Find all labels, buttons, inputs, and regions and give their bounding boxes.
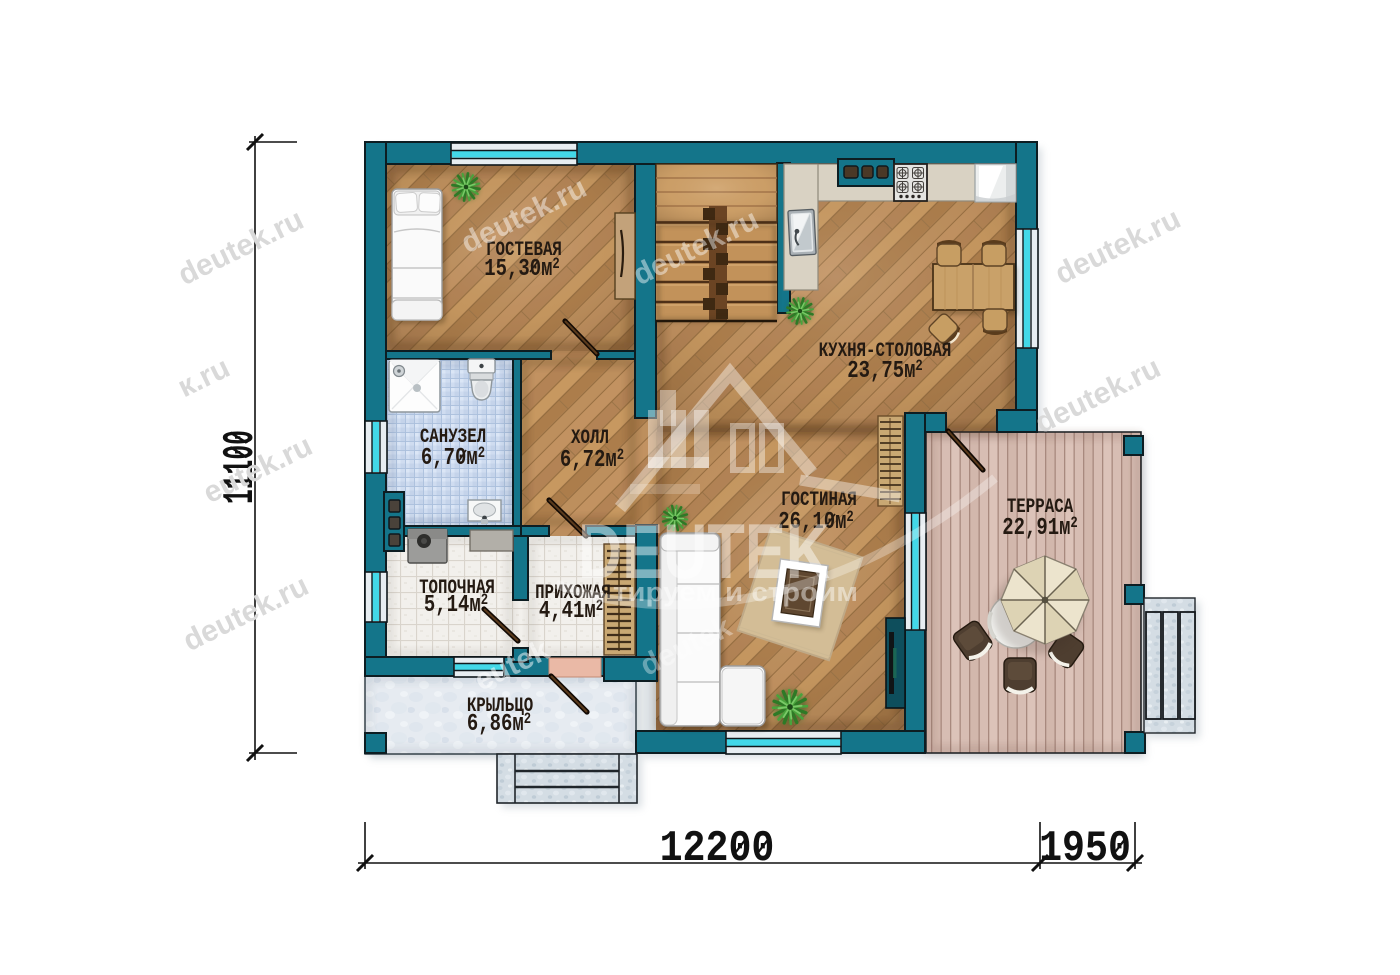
svg-text:15,30м2: 15,30м2 [484, 256, 560, 283]
svg-text:12200: 12200 [660, 825, 775, 874]
svg-text:4,41м2: 4,41м2 [539, 598, 603, 625]
svg-text:23,75м2: 23,75м2 [847, 358, 923, 385]
svg-text:тируем и строим: тируем и строим [613, 577, 858, 607]
svg-text:22,91м2: 22,91м2 [1002, 515, 1078, 542]
svg-text:6,70м2: 6,70м2 [421, 445, 485, 472]
svg-text:6,86м2: 6,86м2 [467, 711, 531, 738]
svg-text:6,72м2: 6,72м2 [560, 447, 624, 474]
svg-text:5,14м2: 5,14м2 [424, 592, 488, 619]
